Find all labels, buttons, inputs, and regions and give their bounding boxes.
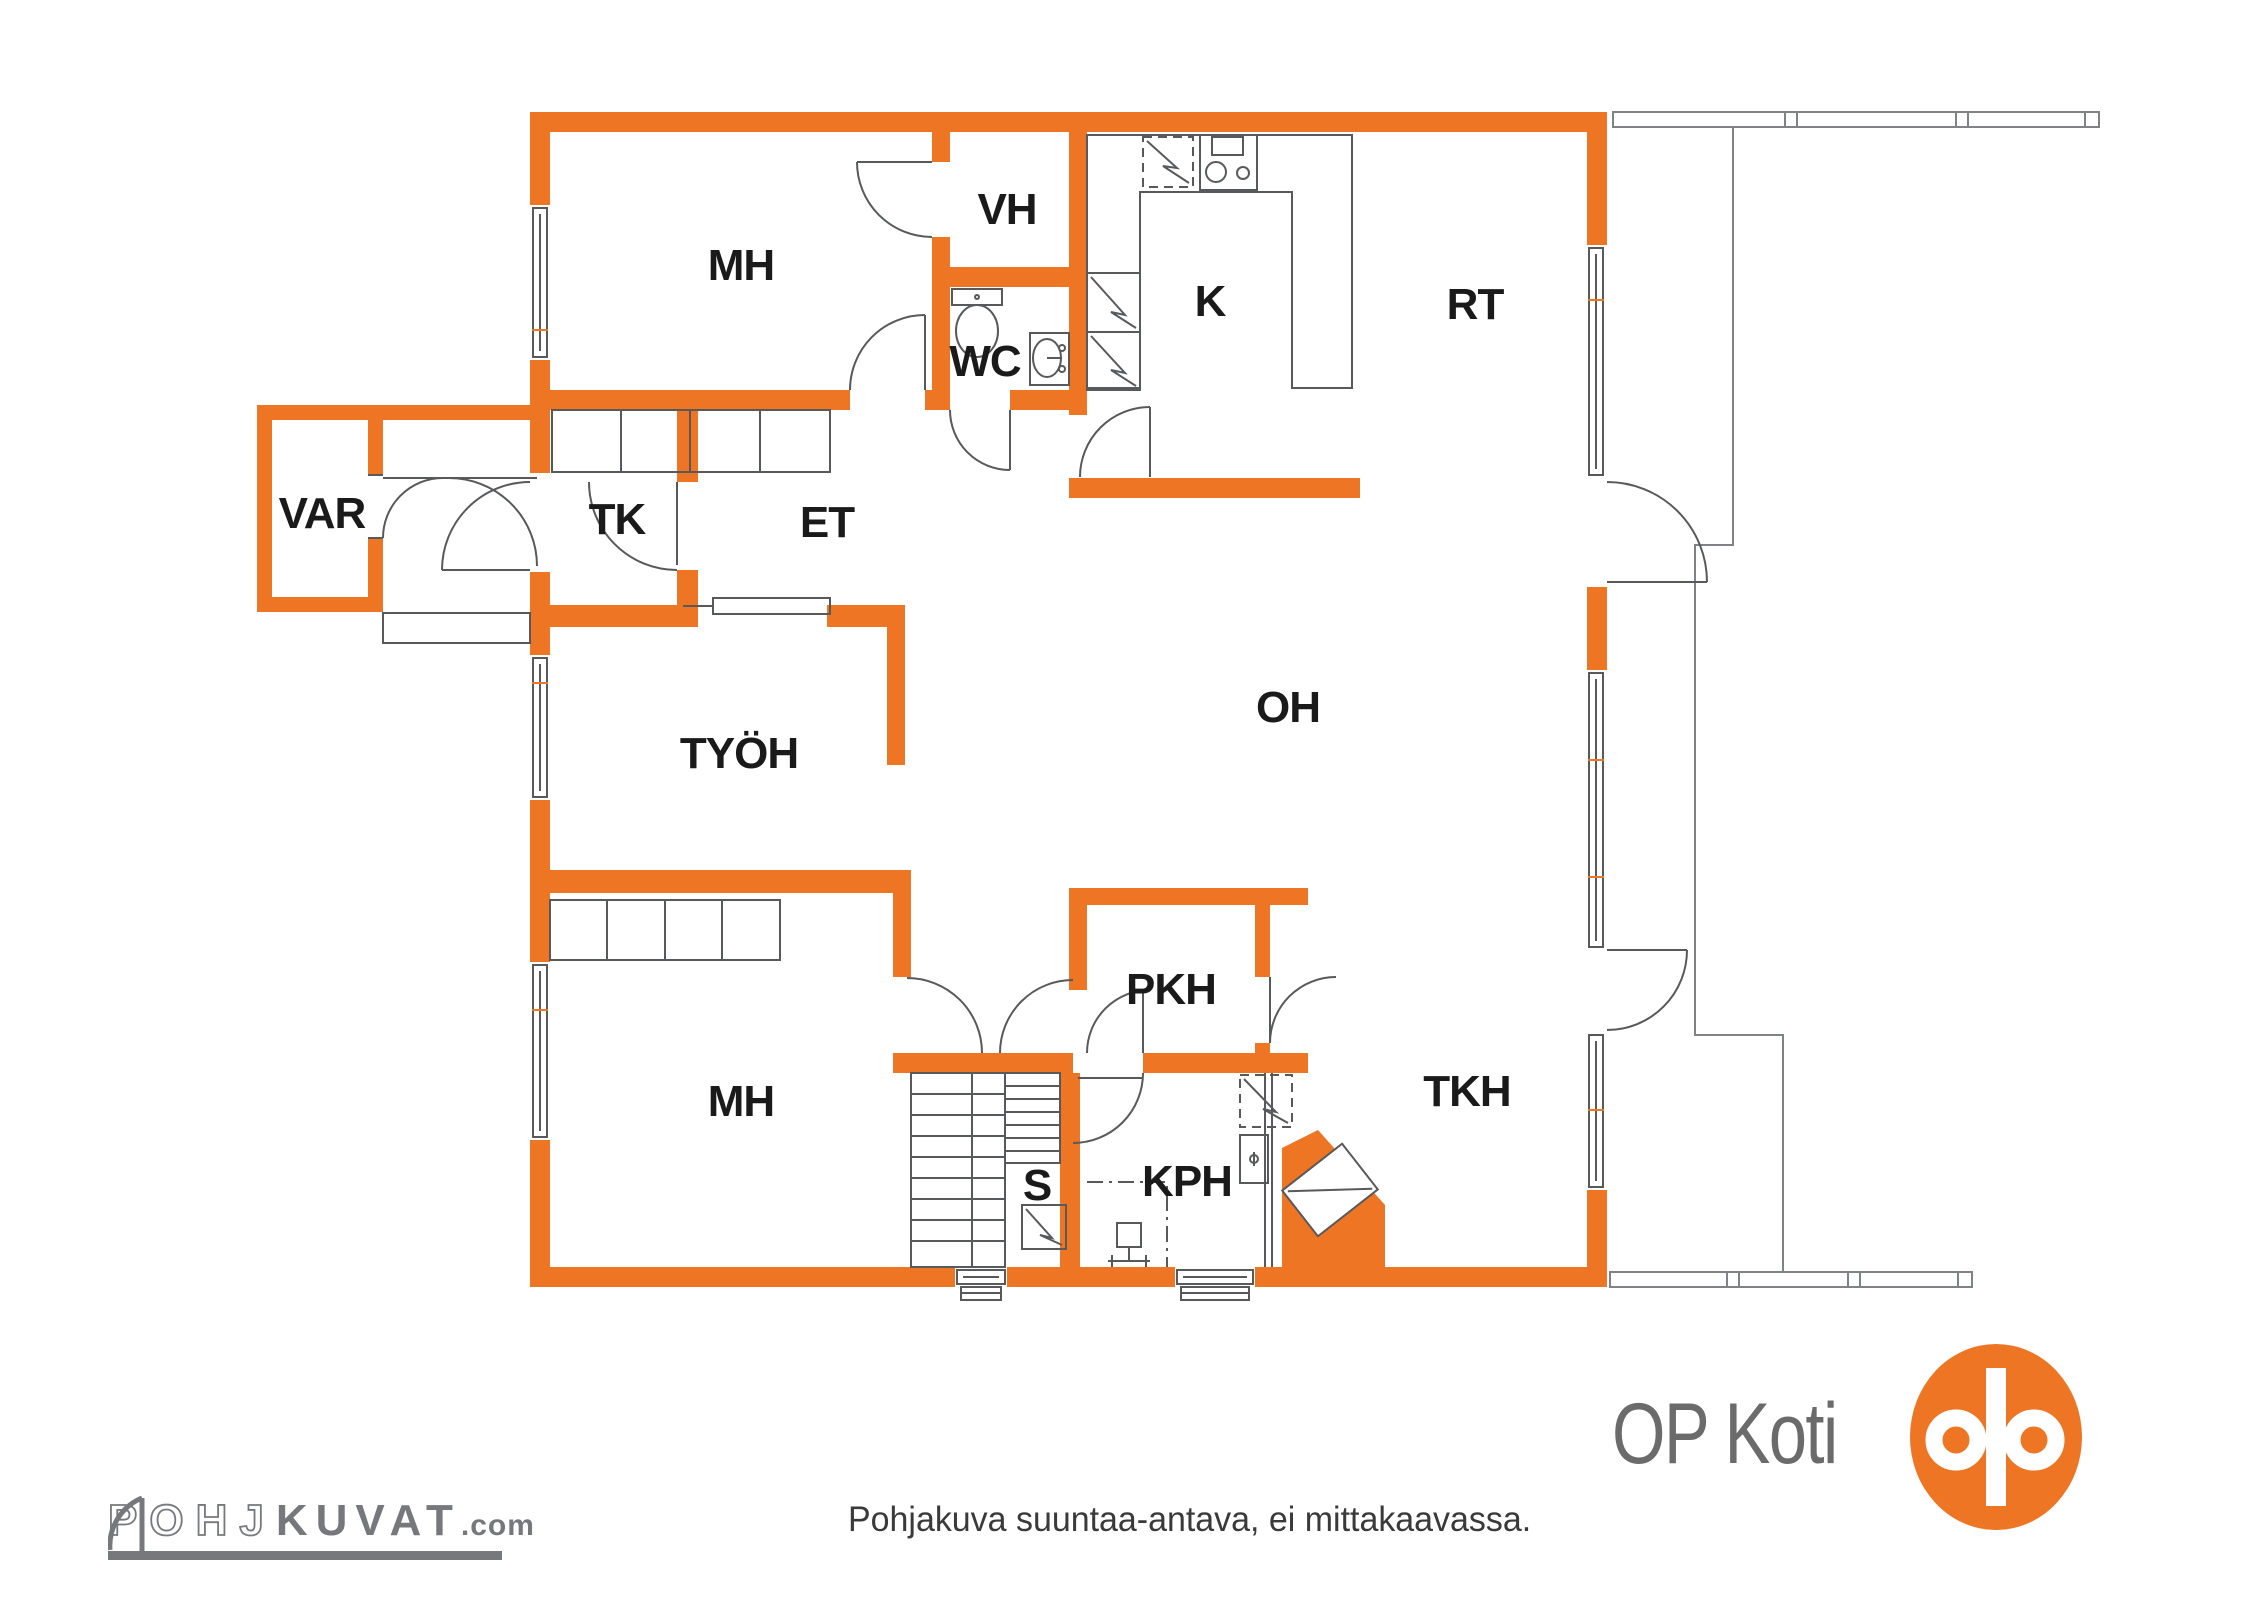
door-arc-icon <box>950 410 1010 470</box>
room-label-kph: KPH <box>1142 1157 1232 1206</box>
window-icon <box>532 208 548 357</box>
room-label-vh: VH <box>977 185 1036 234</box>
pohjakuvat-logo-part3: .com <box>461 1509 535 1542</box>
pohjakuvat-logo: POHJKUVAT.com <box>108 1496 535 1546</box>
sink-icon <box>1030 333 1069 385</box>
window-icon <box>1588 1035 1604 1187</box>
window-icon <box>1588 248 1604 475</box>
room-label-et: ET <box>800 498 855 547</box>
wall-bottom <box>530 1267 1607 1287</box>
pohjakuvat-logo-part2: KUVAT <box>276 1496 461 1545</box>
room-label-tkh: TKH <box>1423 1067 1510 1116</box>
fireplace-icon <box>1282 1130 1385 1287</box>
door-arc-icon <box>1607 482 1707 582</box>
sink-icon <box>1240 1135 1268 1183</box>
deck-railing-icon <box>1610 112 2099 1287</box>
closet-icon <box>552 410 830 472</box>
fridge-icon <box>1143 137 1193 187</box>
door-arc-icon <box>1073 1073 1143 1143</box>
door-arc-icon <box>1607 950 1687 1030</box>
room-label-mh-bottom: MH <box>708 1077 774 1126</box>
door-arc-icon <box>857 162 932 237</box>
door-arc-icon <box>368 475 383 538</box>
door-arc-icon <box>442 482 530 570</box>
sliding-door-icon <box>683 598 830 614</box>
pohjakuvat-logo-bar <box>108 1551 502 1560</box>
door-arc-icon <box>850 315 925 390</box>
room-label-s: S <box>1023 1161 1051 1210</box>
room-label-mh-top: MH <box>708 241 774 290</box>
door-arc-icon <box>1270 977 1336 1043</box>
room-label-rt: RT <box>1447 280 1505 329</box>
walls <box>257 112 1607 1287</box>
door-glyph-icon <box>108 1496 148 1554</box>
room-label-wc: WC <box>949 337 1021 386</box>
door-arc-icon <box>383 478 537 566</box>
room-label-k: K <box>1195 277 1227 326</box>
closet-icon <box>550 900 780 960</box>
doors <box>368 162 1707 1143</box>
disclaimer-text: Pohjakuva suuntaa-antava, ei mittakaavas… <box>848 1500 1531 1540</box>
room-label-tk: TK <box>589 495 647 544</box>
room-label-var: VAR <box>279 489 366 538</box>
deck-edge <box>1695 127 1783 1272</box>
window-icon <box>1588 673 1604 947</box>
deck <box>1610 112 2099 1287</box>
porch-step <box>383 613 530 643</box>
room-label-pkh: PKH <box>1126 965 1216 1014</box>
op-koti-wordmark: OP Koti <box>1612 1385 1837 1484</box>
cold-appliance-icon <box>1087 273 1140 390</box>
room-label-oh: OH <box>1256 683 1320 732</box>
window-icon <box>532 658 548 797</box>
door-arc-icon <box>1080 407 1150 477</box>
stove-icon <box>1200 135 1257 190</box>
kitchen-counter <box>1087 135 1352 390</box>
window-icon <box>532 965 548 1137</box>
door-arc-icon <box>907 978 1073 1053</box>
sauna-stove-icon <box>1022 1205 1066 1249</box>
floorplan-page: MH VH WC K RT VAR TK ET TYÖH OH PKH MH T… <box>0 0 2262 1600</box>
wall-top <box>530 112 1607 132</box>
op-logo-icon <box>1908 1342 2084 1532</box>
room-label-tyoh: TYÖH <box>680 729 798 778</box>
